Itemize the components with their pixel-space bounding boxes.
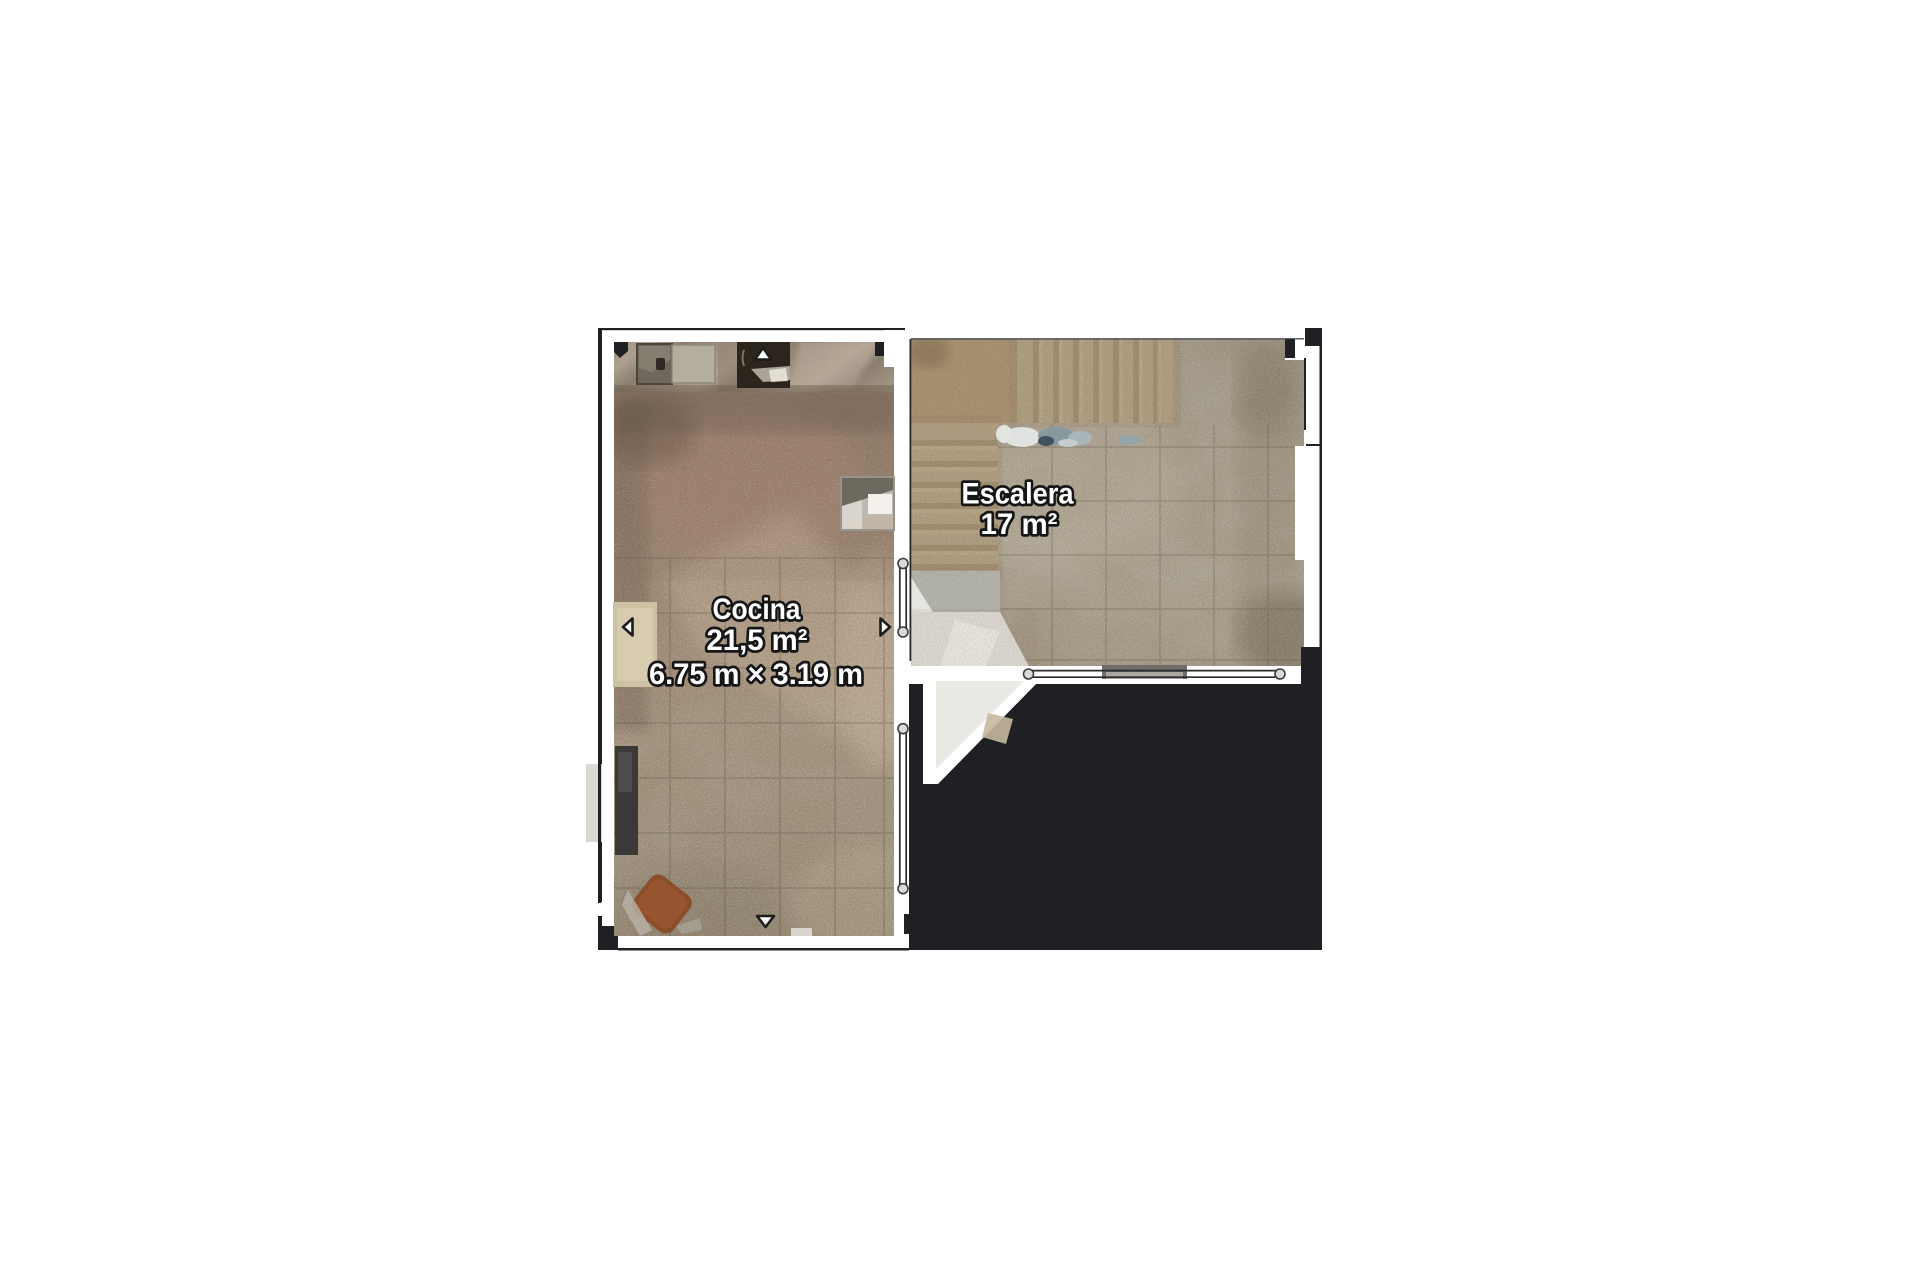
- svg-text:21,5 m²: 21,5 m²: [707, 624, 808, 657]
- svg-text:17 m²: 17 m²: [981, 508, 1058, 541]
- svg-text:Cocina: Cocina: [713, 593, 801, 626]
- svg-text:Escalera: Escalera: [962, 478, 1074, 511]
- svg-text:6.75 m × 3.19 m: 6.75 m × 3.19 m: [649, 658, 863, 691]
